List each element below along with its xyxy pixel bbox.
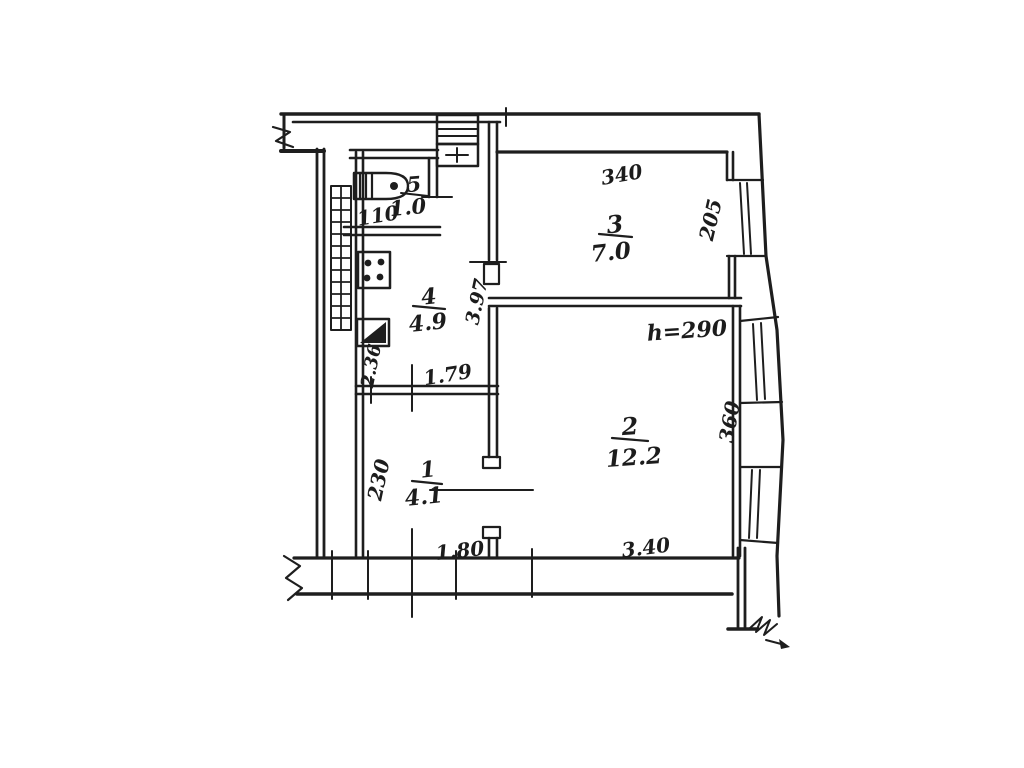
room-2-underline (612, 438, 648, 441)
partition-wall-lower (489, 538, 497, 558)
dim-hall-side: 230 (362, 457, 394, 504)
room-2-area: 12.2 (605, 442, 663, 473)
north-arrow-head-icon (779, 639, 790, 649)
wall-break-bottom-right (749, 617, 777, 635)
radiator-hatch-icon (331, 186, 351, 330)
wc-bowl-dot (390, 182, 398, 190)
dim-kitchen-side: 2.36 (357, 342, 386, 390)
room-1-area: 4.1 (404, 482, 445, 512)
bottom-right-wall (738, 548, 745, 627)
room-3-area: 7.0 (590, 237, 633, 268)
room3-right-wall (727, 152, 735, 298)
room2-door-jamb-bottom (483, 527, 500, 538)
dim-hall-bottom: 1.80 (434, 536, 485, 565)
room2-door-jamb-top (483, 457, 500, 468)
room2-room3-divider-wall (489, 298, 741, 306)
wall-break-top-left (273, 127, 293, 147)
floor-plan-scan: 3 7.0 2 12.2 4 4.9 5 1.0 1 4.1 340 205 h… (0, 0, 1024, 768)
partition-wall-middle (489, 308, 497, 457)
dim-room3-window: 205 (694, 197, 727, 244)
room-4-area: 4.9 (408, 308, 449, 338)
room-labels: 3 7.0 2 12.2 4 4.9 5 1.0 1 4.1 (389, 171, 663, 512)
left-wall (317, 149, 324, 558)
room2-window-lower (740, 467, 782, 543)
dim-ceiling-height: h=290 (646, 315, 729, 347)
room3-window (727, 180, 766, 256)
floor-plan-drawing: 3 7.0 2 12.2 4 4.9 5 1.0 1 4.1 340 205 h… (0, 0, 1024, 768)
partition-wall-upper (489, 122, 497, 260)
vent-cross-icon (446, 148, 468, 162)
windows (727, 180, 782, 543)
room-2-number: 2 (620, 411, 640, 441)
room-1-number: 1 (419, 456, 437, 483)
ventilation-shaft-icon (437, 115, 478, 166)
dim-room3-top: 340 (599, 159, 644, 190)
